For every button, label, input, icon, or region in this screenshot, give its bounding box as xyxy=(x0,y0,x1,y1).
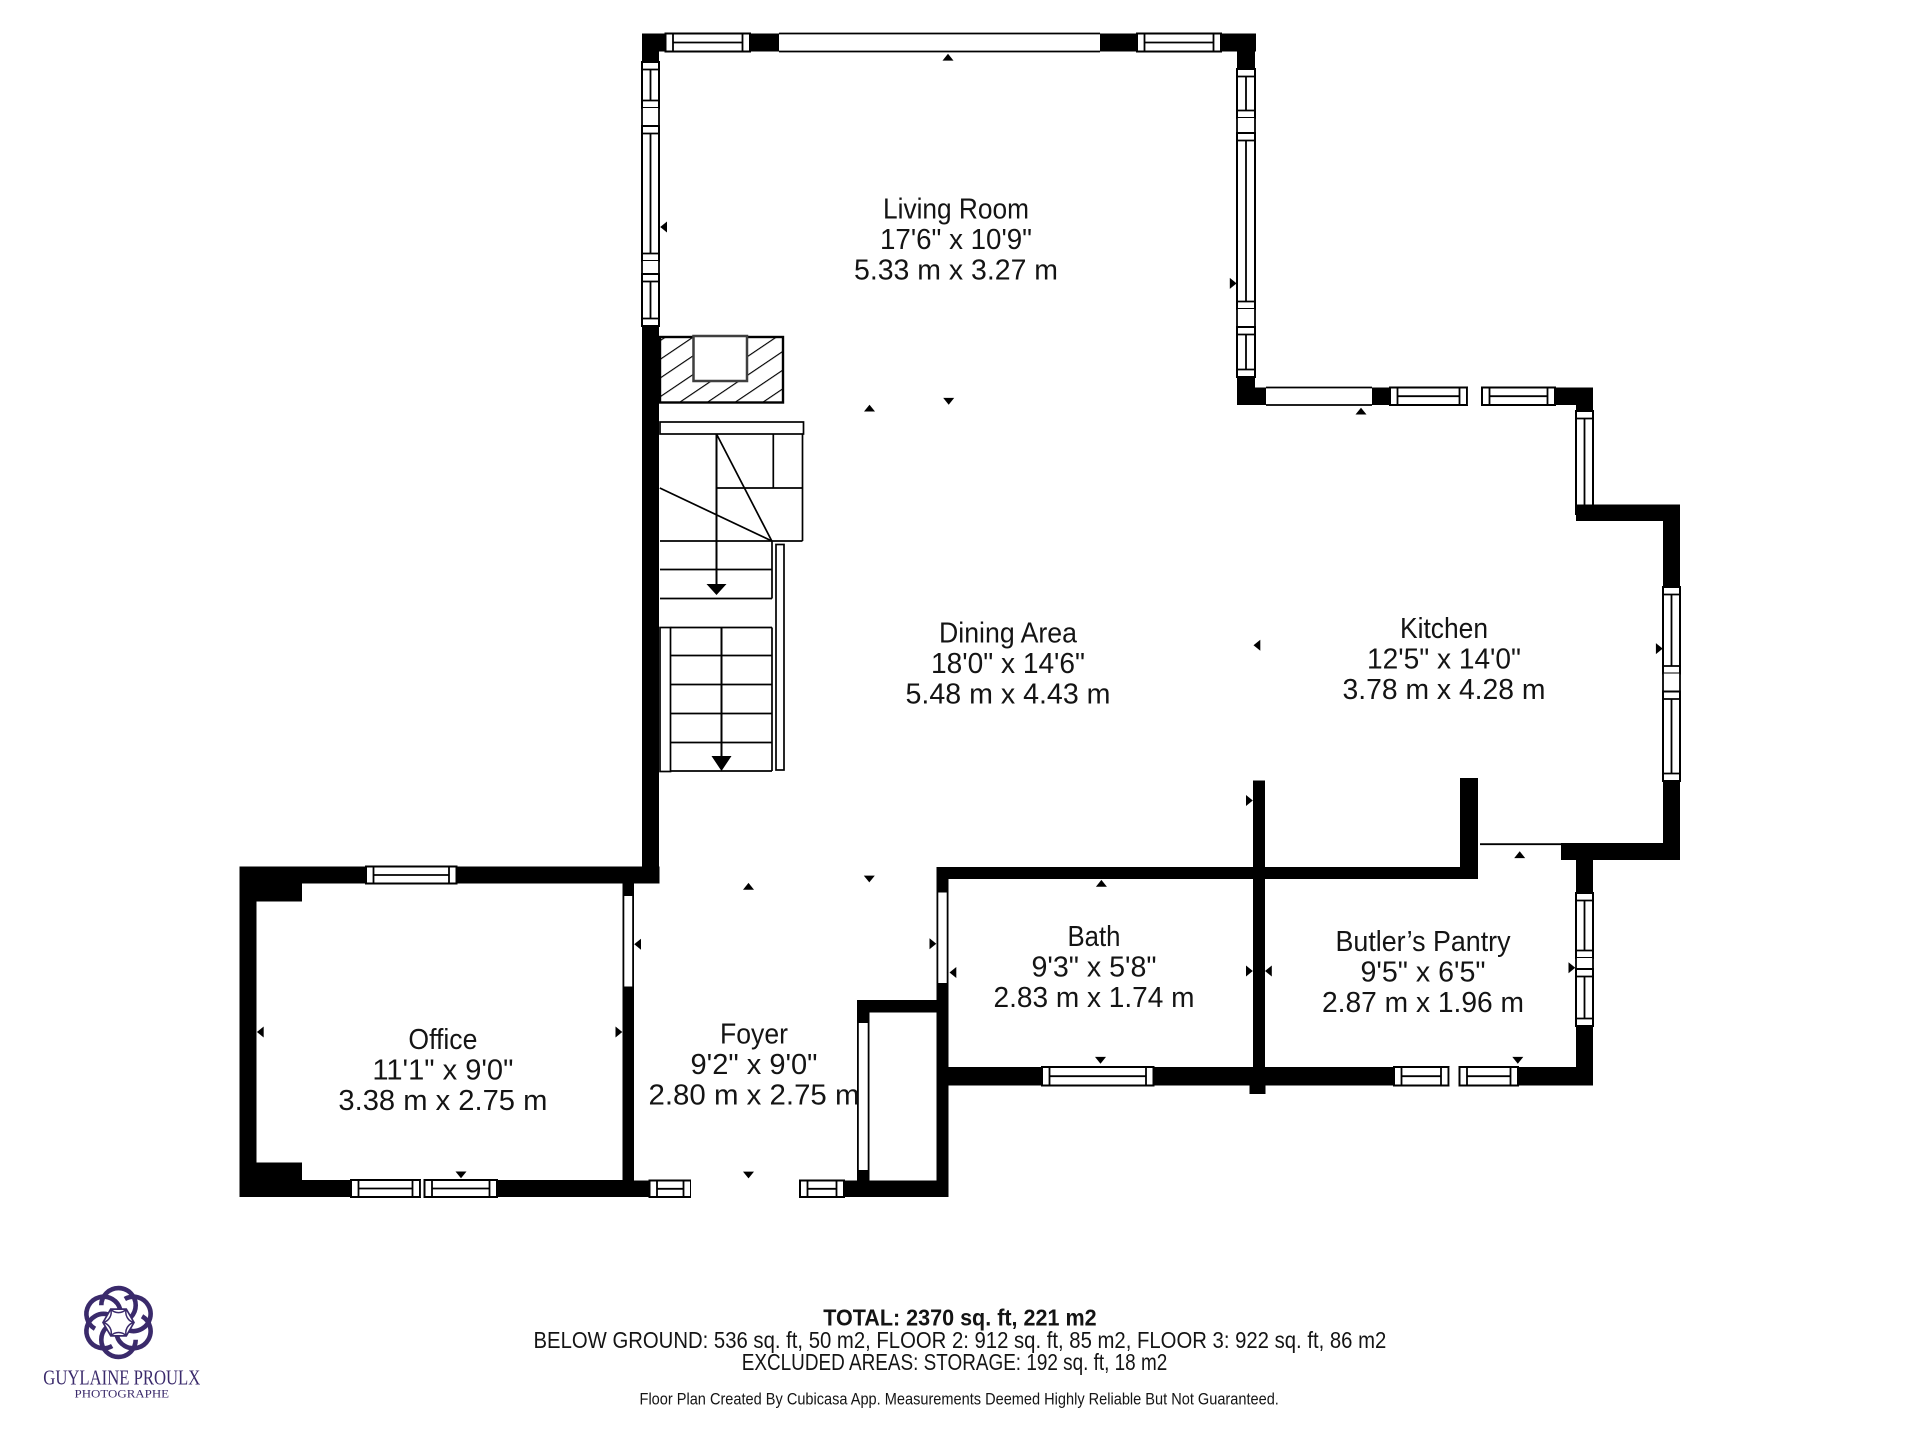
svg-text:EXCLUDED AREAS: STORAGE: 192 s: EXCLUDED AREAS: STORAGE: 192 sq. ft, 18 … xyxy=(742,1349,1168,1375)
svg-text:2.83 m x 1.74 m: 2.83 m x 1.74 m xyxy=(994,982,1195,1014)
svg-text:2.80 m x 2.75 m: 2.80 m x 2.75 m xyxy=(649,1080,860,1112)
svg-text:9'3" x 5'8": 9'3" x 5'8" xyxy=(1032,951,1157,983)
svg-text:11'1" x 9'0": 11'1" x 9'0" xyxy=(372,1055,513,1087)
svg-text:9'2" x 9'0": 9'2" x 9'0" xyxy=(691,1049,818,1081)
svg-text:Office: Office xyxy=(408,1024,477,1056)
svg-text:9'5" x 6'5": 9'5" x 6'5" xyxy=(1361,957,1486,989)
svg-text:3.78 m x 4.28 m: 3.78 m x 4.28 m xyxy=(1343,674,1546,706)
svg-text:PHOTOGRAPHE: PHOTOGRAPHE xyxy=(75,1389,170,1401)
svg-text:3.38 m x 2.75 m: 3.38 m x 2.75 m xyxy=(338,1085,547,1117)
svg-text:Living Room: Living Room xyxy=(883,194,1029,226)
svg-text:12'5" x 14'0": 12'5" x 14'0" xyxy=(1367,644,1521,676)
svg-text:Butler’s Pantry: Butler’s Pantry xyxy=(1336,926,1511,958)
svg-text:Bath: Bath xyxy=(1068,921,1121,953)
svg-text:Floor Plan Created By Cubicasa: Floor Plan Created By Cubicasa App. Meas… xyxy=(640,1391,1279,1409)
svg-text:Foyer: Foyer xyxy=(720,1019,788,1051)
svg-text:17'6" x 10'9": 17'6" x 10'9" xyxy=(880,224,1032,256)
svg-text:18'0" x 14'6": 18'0" x 14'6" xyxy=(931,648,1085,680)
svg-text:Dining Area: Dining Area xyxy=(939,618,1078,650)
svg-text:5.33 m x 3.27 m: 5.33 m x 3.27 m xyxy=(854,255,1058,287)
svg-text:Kitchen: Kitchen xyxy=(1400,613,1488,645)
svg-text:GUYLAINE PROULX: GUYLAINE PROULX xyxy=(43,1365,200,1389)
svg-text:2.87 m x 1.96 m: 2.87 m x 1.96 m xyxy=(1322,987,1524,1019)
svg-text:5.48 m x 4.43 m: 5.48 m x 4.43 m xyxy=(906,679,1111,711)
